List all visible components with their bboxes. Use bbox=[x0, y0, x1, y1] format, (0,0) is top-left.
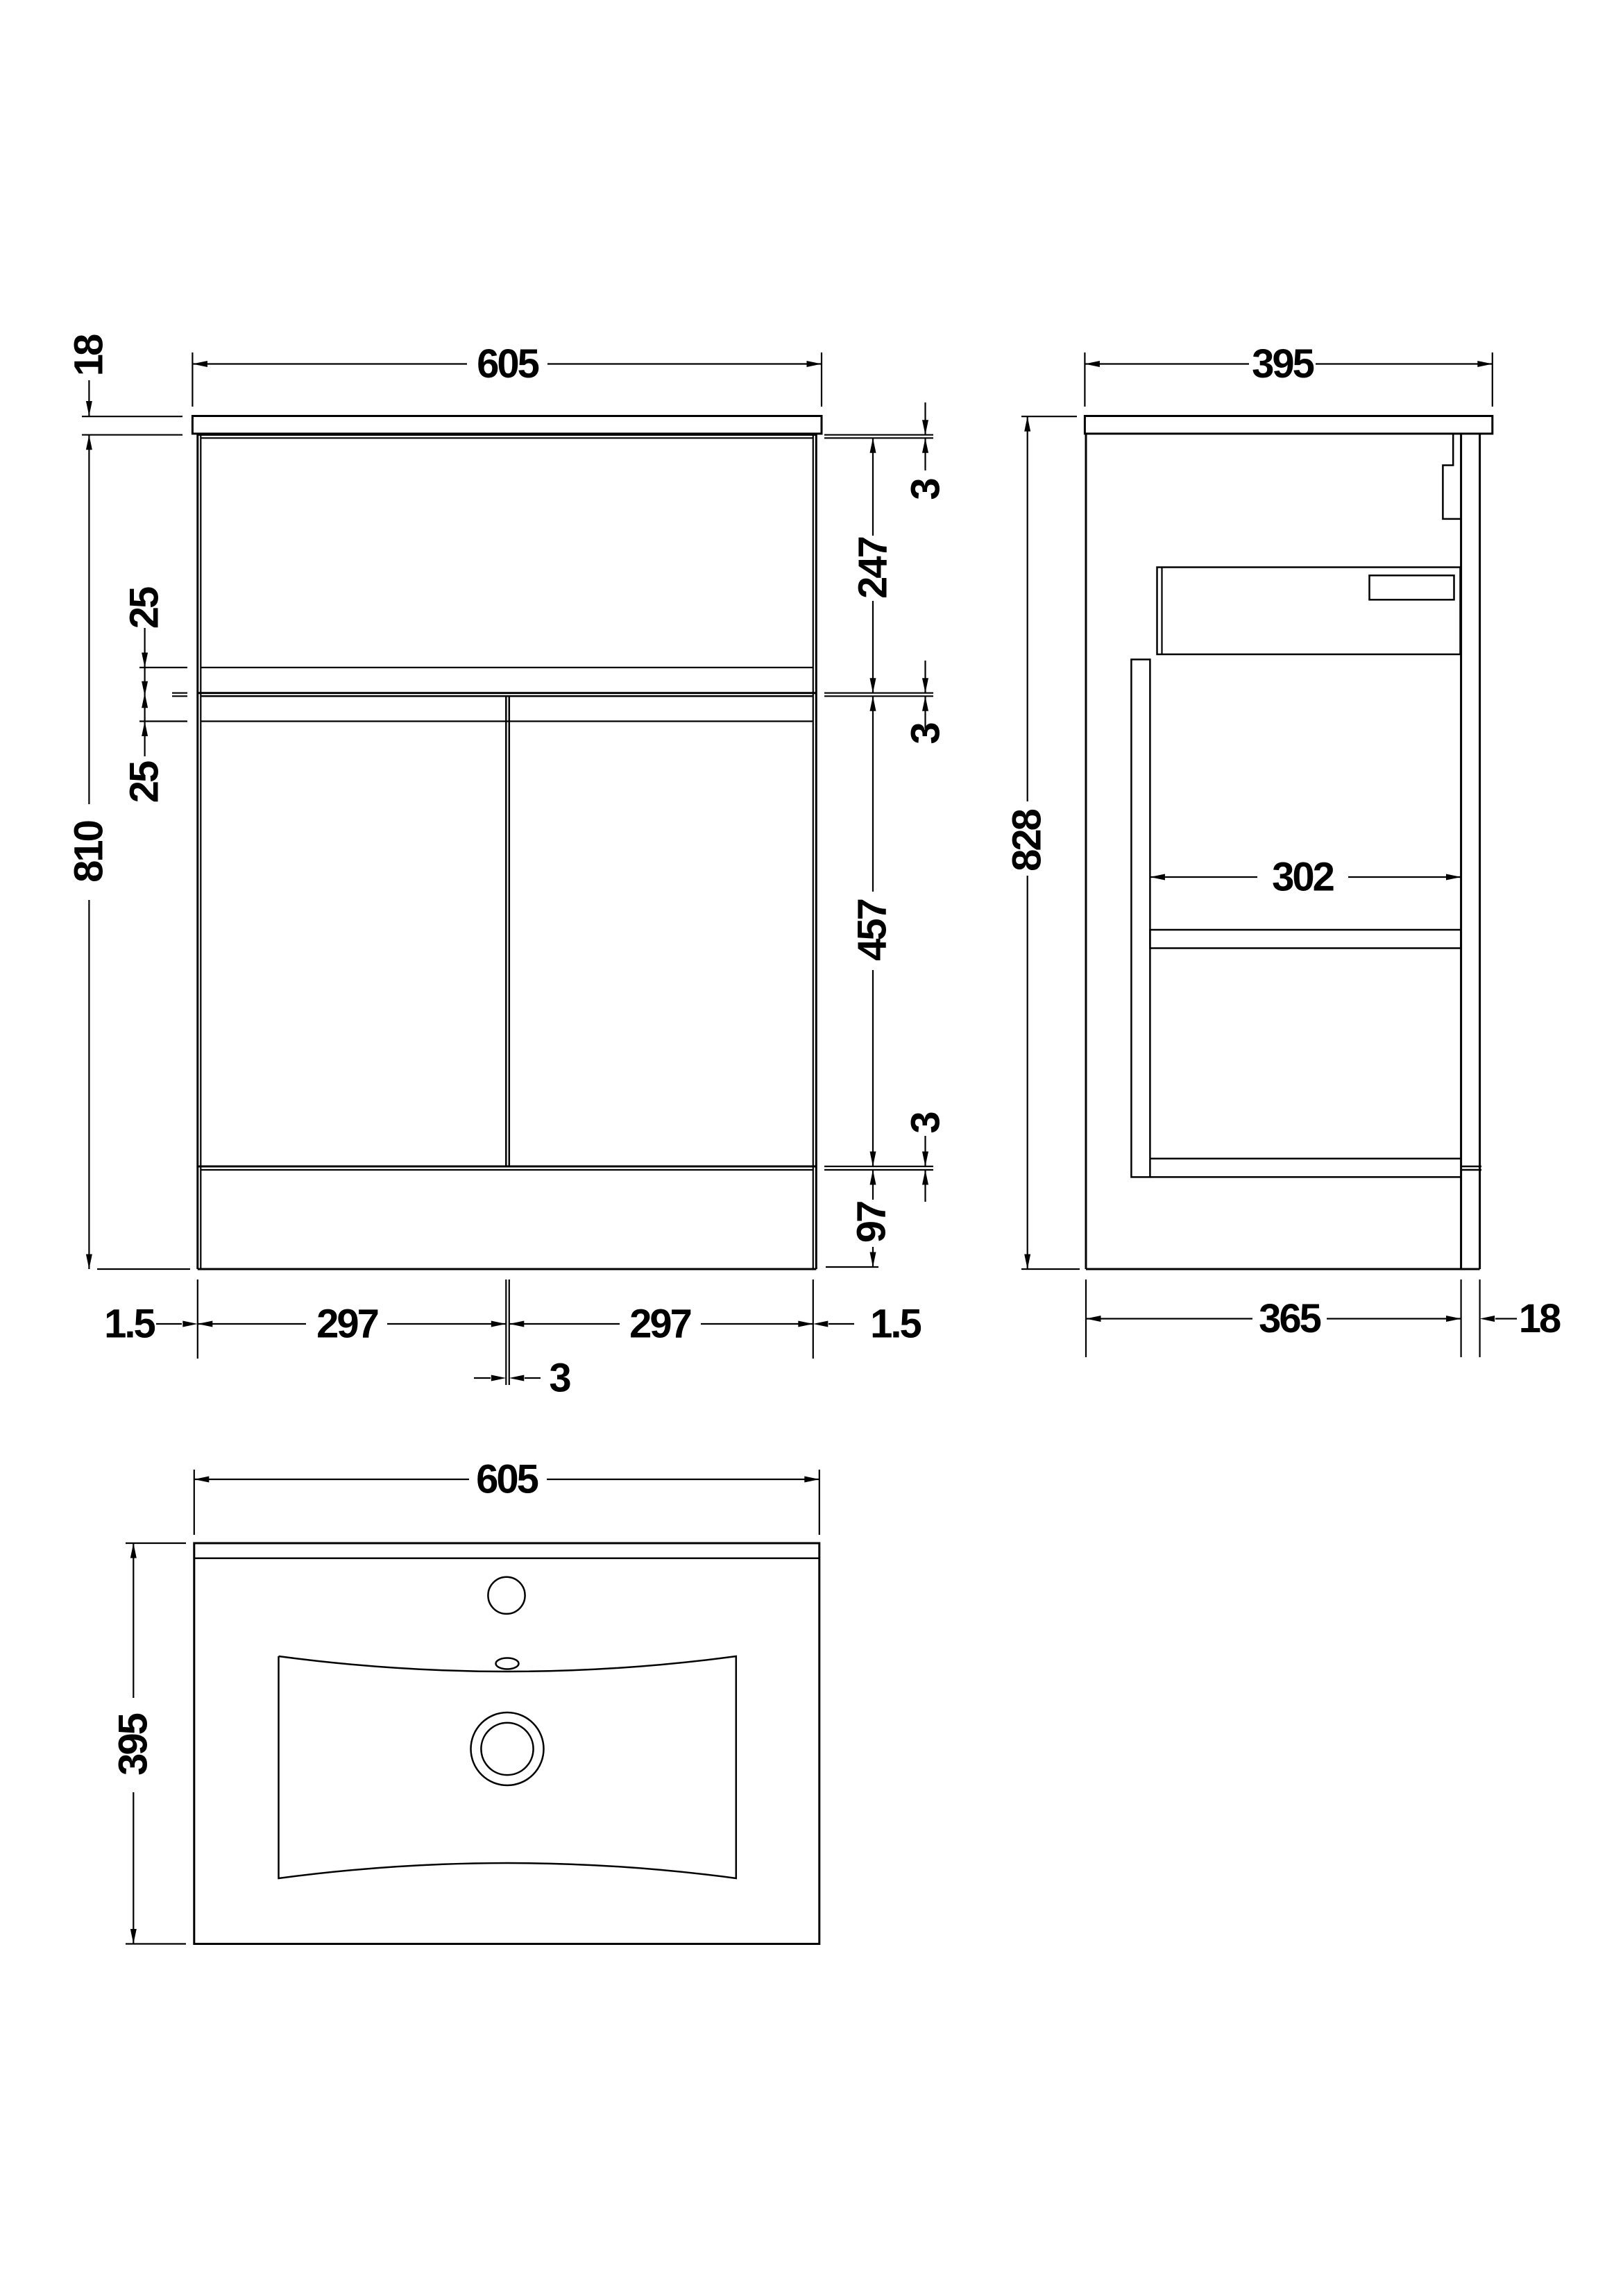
svg-text:1.5: 1.5 bbox=[870, 1302, 921, 1347]
svg-text:605: 605 bbox=[477, 341, 539, 386]
svg-text:3: 3 bbox=[549, 1356, 570, 1401]
svg-text:395: 395 bbox=[1252, 341, 1314, 386]
svg-text:97: 97 bbox=[849, 1202, 894, 1243]
svg-text:297: 297 bbox=[316, 1302, 378, 1347]
svg-text:395: 395 bbox=[111, 1713, 156, 1776]
svg-text:457: 457 bbox=[850, 899, 895, 961]
svg-text:297: 297 bbox=[629, 1302, 691, 1347]
svg-text:18: 18 bbox=[1519, 1296, 1561, 1341]
svg-text:365: 365 bbox=[1259, 1296, 1321, 1341]
svg-text:605: 605 bbox=[476, 1457, 538, 1502]
svg-text:302: 302 bbox=[1272, 855, 1334, 900]
svg-text:3: 3 bbox=[903, 723, 949, 745]
svg-text:1.5: 1.5 bbox=[104, 1302, 155, 1347]
svg-text:3: 3 bbox=[903, 1112, 949, 1134]
svg-text:3: 3 bbox=[903, 479, 949, 500]
svg-text:828: 828 bbox=[1005, 809, 1050, 871]
svg-text:247: 247 bbox=[851, 537, 896, 599]
svg-text:810: 810 bbox=[67, 821, 112, 883]
svg-text:25: 25 bbox=[122, 761, 167, 803]
svg-text:18: 18 bbox=[67, 334, 112, 376]
svg-text:25: 25 bbox=[122, 587, 167, 629]
